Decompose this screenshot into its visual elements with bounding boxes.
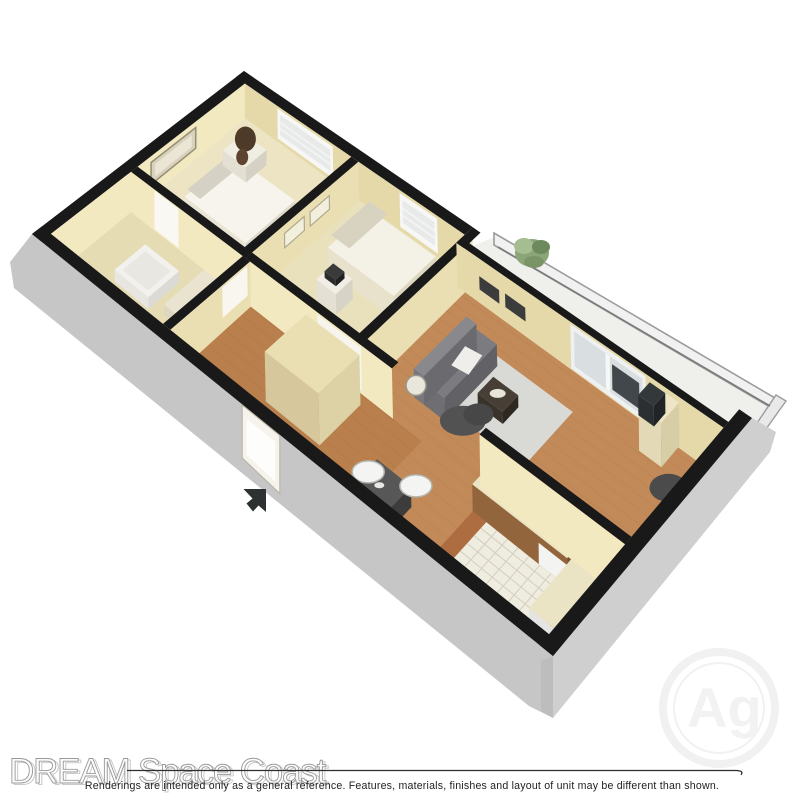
svg-text:Renderings are intended only a: Renderings are intended only as a genera… xyxy=(85,780,719,792)
svg-text:Ag: Ag xyxy=(687,676,762,739)
